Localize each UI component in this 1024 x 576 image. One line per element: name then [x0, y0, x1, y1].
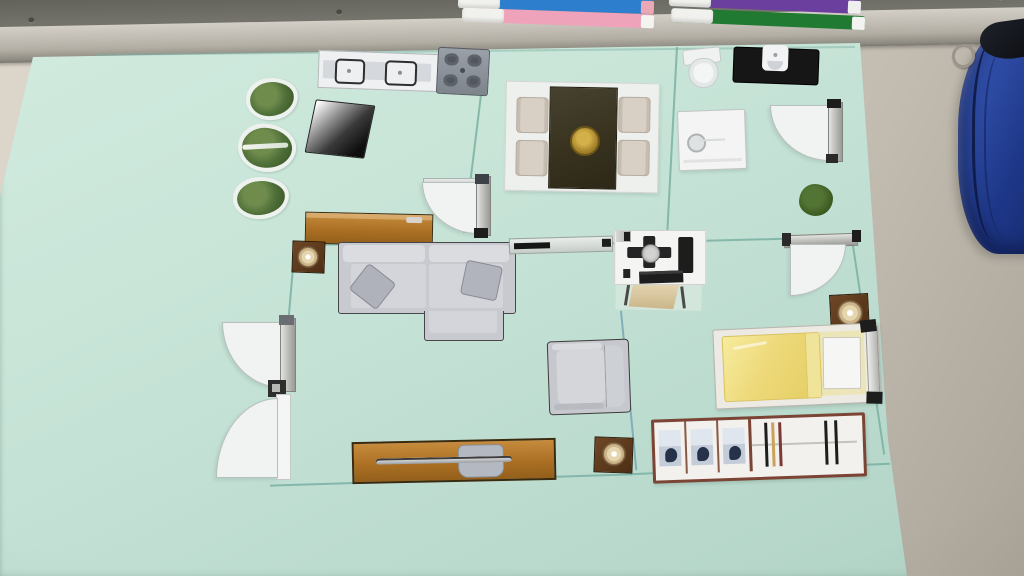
- plant-foliage: [249, 80, 296, 118]
- hinge-cap: [474, 228, 488, 238]
- clothes-item: [697, 447, 709, 461]
- burner: [467, 54, 482, 67]
- clothes-item: [665, 448, 677, 462]
- folded-clothes: [658, 430, 681, 467]
- marker-tip: [641, 1, 654, 14]
- chair-leg: [624, 283, 630, 305]
- shower-line: [699, 139, 725, 142]
- sofa-body: [338, 242, 516, 314]
- chaise-cushion: [429, 311, 497, 333]
- back-cushion: [343, 245, 425, 262]
- marker-cap: [671, 8, 714, 24]
- bed-duvet: [722, 332, 823, 402]
- kitchen-sink-unit: [317, 50, 438, 92]
- pillow: [823, 337, 861, 389]
- door-leaf: [222, 322, 282, 388]
- shower-edge: [684, 158, 742, 163]
- dining-table: [548, 86, 618, 189]
- zipper-seam: [984, 46, 1024, 238]
- tv-console: [352, 438, 557, 484]
- washer-knob: [773, 53, 777, 57]
- armchair-seat: [556, 348, 606, 404]
- hinge-cap: [826, 154, 838, 163]
- handle: [406, 217, 422, 223]
- lamp: [602, 442, 627, 467]
- bathroom-door: [770, 102, 842, 166]
- desk-photo-bg: [615, 281, 701, 310]
- monitor: [678, 237, 693, 273]
- drain: [398, 71, 402, 75]
- armchair-arm: [554, 402, 604, 410]
- screw: [28, 17, 34, 22]
- stove-knob: [460, 68, 465, 73]
- lamp: [297, 246, 320, 269]
- living-room-door: [220, 318, 300, 394]
- sectional-sofa: [338, 242, 514, 340]
- headboard-cap: [860, 319, 877, 333]
- hinge-fitting: [616, 231, 631, 242]
- armchair: [547, 339, 632, 416]
- shelf-divider: [716, 420, 720, 472]
- mouse: [623, 269, 630, 278]
- door-leaf: [790, 244, 846, 296]
- chair-leg: [680, 286, 686, 308]
- washer-door: [762, 45, 789, 72]
- entry-door: [210, 392, 292, 482]
- window-cap: [602, 239, 611, 247]
- door-leaf: [770, 105, 830, 161]
- wardrobe: [651, 412, 867, 483]
- throw-pillow: [460, 260, 503, 302]
- shelf-divider: [684, 422, 688, 474]
- drain: [347, 69, 351, 73]
- sofa-chaise: [424, 311, 504, 341]
- hinge-cap: [475, 174, 489, 184]
- marker-tip: [848, 0, 862, 13]
- folded-clothes: [722, 428, 745, 465]
- shower-knob: [687, 133, 707, 153]
- door-jamb: [276, 394, 291, 480]
- gold-platter: [570, 126, 601, 157]
- side-table-lamp: [593, 436, 633, 473]
- washing-machine: [732, 47, 819, 86]
- door-leaf: [216, 398, 278, 478]
- armchair-back: [604, 345, 625, 408]
- burner: [444, 53, 459, 66]
- marker-tip: [852, 17, 866, 30]
- folded-clothes: [690, 429, 713, 466]
- hinge-cap: [827, 99, 841, 108]
- fan-hub: [641, 244, 660, 263]
- hinge-cap: [279, 315, 294, 325]
- marker-tip: [641, 15, 654, 28]
- toilet: [682, 46, 726, 90]
- washer-drum: [767, 61, 783, 71]
- burner: [443, 74, 458, 87]
- dining-chair: [618, 97, 651, 134]
- door-hinge-bar: [828, 102, 843, 162]
- duvet-glare: [733, 341, 767, 350]
- hinge-cap: [852, 230, 861, 242]
- window-slider: [509, 236, 613, 255]
- hinge-pin: [272, 384, 280, 392]
- clothes-item: [729, 446, 741, 460]
- window-dark-panel: [514, 242, 550, 249]
- single-bed: [712, 322, 881, 409]
- screw: [336, 9, 342, 14]
- duvet-fold: [805, 333, 822, 398]
- burner: [466, 75, 481, 88]
- sink-basin: [335, 59, 366, 85]
- dining-chair: [515, 140, 548, 177]
- dining-chair: [617, 140, 650, 177]
- wall-tv: [305, 99, 376, 158]
- door-hinge-bar: [476, 176, 491, 236]
- stove: [436, 47, 490, 97]
- keyboard: [639, 270, 683, 284]
- side-table-lamp: [291, 240, 325, 273]
- shower-base: [677, 109, 747, 171]
- desk-chair: [627, 282, 683, 309]
- dining-chair: [516, 97, 549, 134]
- marker-cap: [462, 8, 504, 23]
- dining-set: [504, 81, 660, 194]
- hinge-cap: [624, 232, 630, 241]
- photo-scene: [0, 0, 1024, 576]
- study-door: [782, 228, 860, 296]
- sink-basin: [385, 60, 418, 86]
- headboard-cap: [866, 391, 882, 403]
- headboard-bar: [865, 325, 880, 399]
- plant-foliage: [236, 180, 286, 216]
